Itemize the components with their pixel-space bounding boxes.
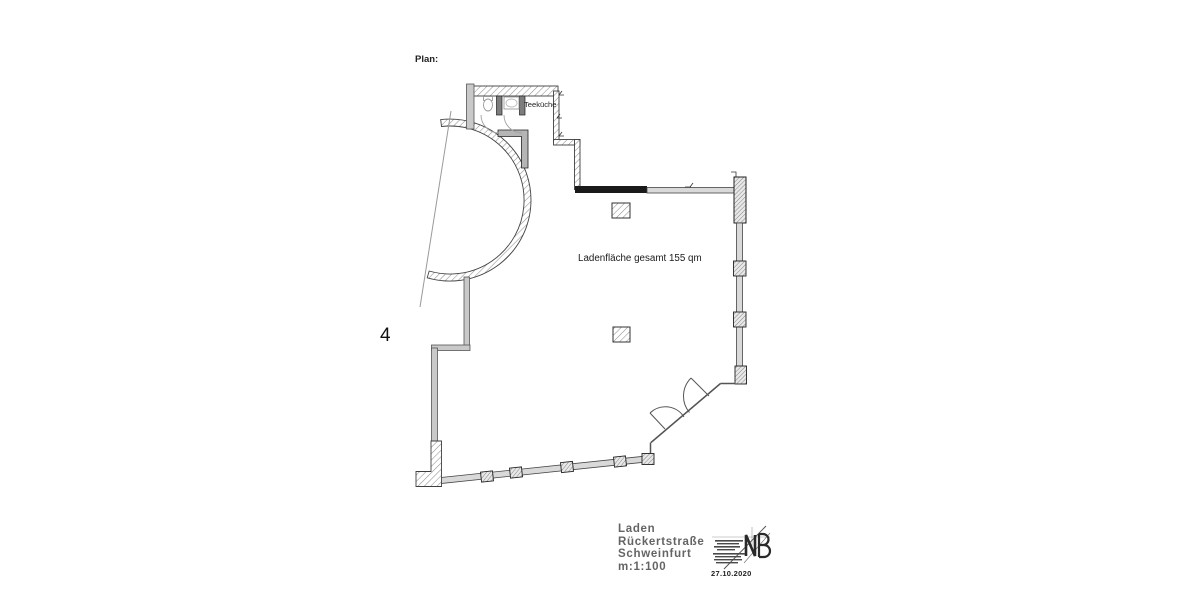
left-walls — [416, 277, 470, 487]
title-project: Laden — [618, 523, 704, 536]
step-wall-vertical — [575, 140, 581, 190]
right-window-wall — [737, 223, 743, 367]
window-mullion-bottom-5 — [642, 454, 654, 465]
title-city: Schweinfurt — [618, 548, 704, 561]
wc-top-wall — [467, 86, 558, 96]
bottom-facade — [441, 454, 654, 484]
title-scale: m:1:100 — [618, 561, 704, 574]
wc-teekueche-block — [467, 84, 737, 190]
window-mullion-right-2 — [734, 312, 747, 327]
window-mullion-bottom-4 — [614, 456, 627, 467]
floor-plan-sheet: Plan: Teeküche Ladenfläche gesamt 155 qm… — [0, 0, 1200, 600]
left-lower-wall — [432, 348, 438, 443]
curved-wall — [427, 119, 531, 281]
wc-partition-1 — [497, 96, 503, 115]
pillar-bottom-right — [735, 366, 747, 384]
corner-pier-southwest — [416, 441, 442, 487]
window-mullion-bottom-3 — [561, 461, 574, 472]
sink-fixture — [504, 97, 519, 109]
title-block: Laden Rückertstraße Schweinfurt m:1:100 — [618, 523, 704, 573]
toilet-fixture — [484, 97, 493, 112]
dark-top-wall — [575, 186, 647, 193]
plan-heading: Plan: — [415, 54, 438, 65]
floor-plan-drawing: Plan: Teeküche Ladenfläche gesamt 155 qm… — [0, 0, 1200, 600]
entrance — [650, 378, 736, 460]
wc-left-wall — [467, 84, 475, 129]
entrance-door-right — [683, 378, 709, 412]
column-1 — [612, 203, 630, 218]
window-mullion-bottom-1 — [481, 471, 494, 482]
column-2 — [613, 327, 630, 342]
wall-tick-marks — [557, 91, 736, 187]
window-mullion-bottom-2 — [510, 467, 523, 478]
right-facade — [734, 177, 747, 384]
title-street: Rückertstraße — [618, 536, 704, 549]
pillar-top-right — [734, 177, 746, 223]
architect-stamp — [712, 526, 770, 569]
window-mullion-right-1 — [734, 261, 747, 276]
top-window-wall — [647, 188, 735, 194]
stamp-date: 27.10.2020 — [711, 569, 752, 578]
left-mid-wall — [464, 277, 470, 347]
entrance-diagonal-wall — [651, 384, 721, 443]
area-note: Ladenfläche gesamt 155 qm — [578, 253, 702, 264]
position-marker: 4 — [380, 325, 391, 346]
teekueche-label: Teeküche — [524, 100, 557, 109]
